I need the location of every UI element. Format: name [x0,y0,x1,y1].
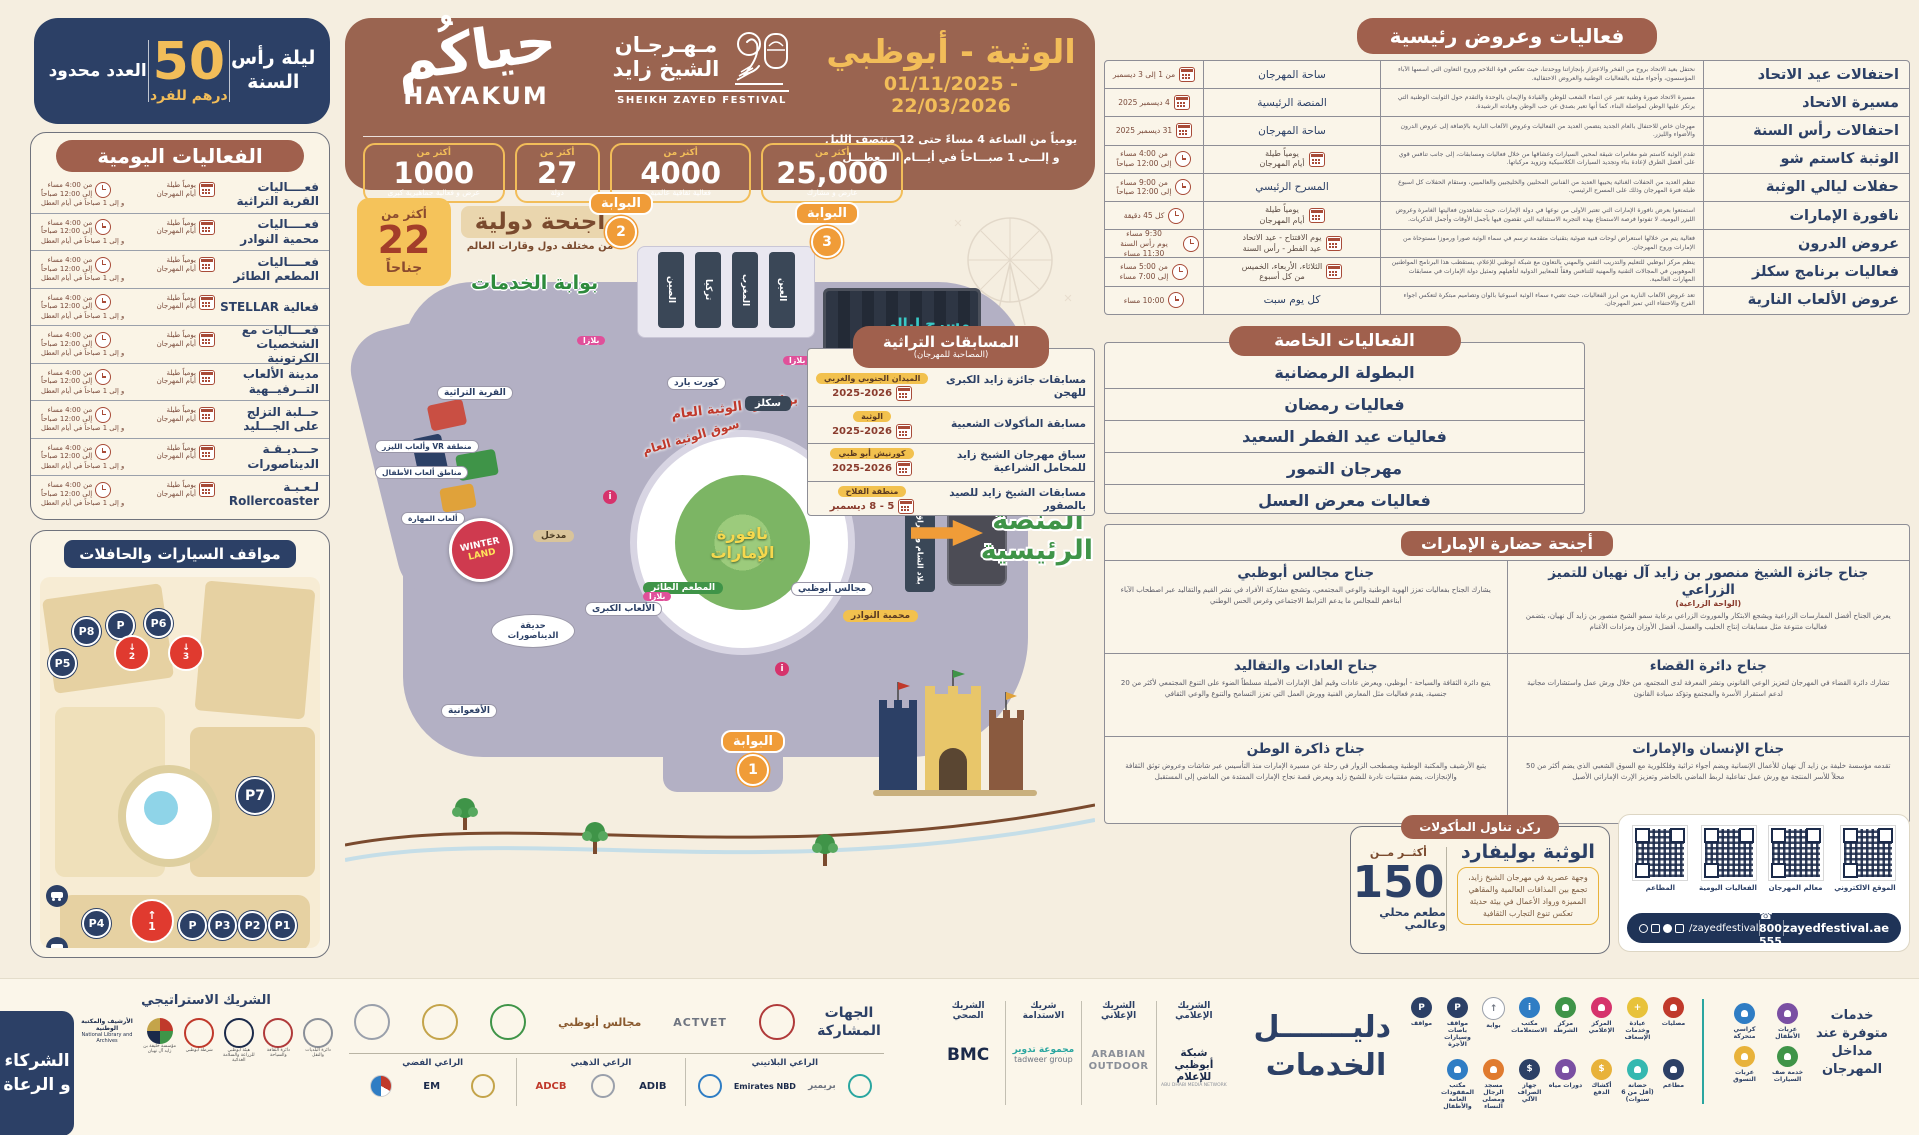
pavilion-name: جناح جائزة الشيخ منصور بن زايد آل نهيان … [1520,565,1898,599]
pavilion-levant-iraq: بلاد الشام والعراق [905,506,935,592]
pavilion-alain: العين [769,252,795,328]
website-url: zayedfestival.ae [1783,921,1889,935]
qr-item-daily-events: الفعاليات اليومية [1699,825,1757,892]
event-time: من 9:00 مساءإلى 12:00 صباحاً [1105,174,1203,201]
contact-footer-bar: /zayedfestival ☎ 800 555 zayedfestival.a… [1627,913,1901,943]
new-year-price-badge: ليلة رأس السنة 50 درهم للفرد العدد محدود [34,18,330,124]
event-row: مسيرة الاتحادمسيرة الاتحاد صورة وطنية تع… [1105,88,1909,116]
poi-vr-zone: منطقة VR وألعاب الليزر [375,440,479,453]
daily-events-list: فعــــاليات القرية التراثيةيومياً طيلةأي… [31,176,329,513]
pavilion-count-badge: أكثر من 22 جناحاً [357,198,451,286]
gate-number: 1 [148,921,156,932]
falcon-arch-icon [727,28,791,86]
service-icon-item: +عيادة وخدمات الإسعاف [1620,997,1655,1049]
service-icon-item: مسجد الرجال ومصلى النساء [1476,1059,1511,1111]
gate-label: البوابة [591,194,651,213]
special-event-row: فعاليات رمضان [1105,388,1584,420]
event-date: 31 ديسمبر 2025 [1105,117,1203,144]
emirates-pavilions-section: أجنحة حضارة الإمارات جناح جائزة الشيخ من… [1104,524,1910,824]
cal-l1: يومياً طيلة [166,481,196,489]
time-l2: إلى 12:00 صباحاً [41,377,92,385]
heritage-name: مسابقة المأكولات الشعبية [934,418,1086,431]
event-date-text: 4 ديسمبر 2025 [1118,98,1170,107]
gold-sponsors: الراعي الذهبي ADCB ADIB [516,1058,684,1106]
event-location: ساحة المهرجان [1203,117,1380,144]
logo-caption: شرطة أبوظبي [181,1048,217,1053]
service-icon [1591,997,1612,1018]
gate-3: البوابة 3 [797,204,857,258]
festival-name-ar-2: الشيخ زايد [613,57,720,81]
parking-lot-p6: P6 [144,609,173,638]
event-desc: مهرجان خاص للاحتفال بالعام الجديد يتضمن … [1380,117,1703,144]
gate-label: البوابة [797,204,857,223]
badge22-suffix: جناحاً [386,261,422,276]
pavilion-china: الصين [658,252,684,328]
dct-logo: دائرة الثقافة والسياحة [260,1018,296,1058]
calendar-icon [896,424,912,439]
pavilion-name: جناح دائرة القضاء [1520,658,1898,675]
actvet-logo: ACTVET [673,1016,727,1029]
event-desc-text: تعد عروض الألعاب النارية من أبرز الفعالي… [1389,292,1695,309]
event-desc: استمتعوا بعرض نافورة الإمارات التي تعتبر… [1380,202,1703,229]
event-name: عروض الدرون [1703,230,1909,257]
event-desc: فعالية يتم من خلالها استعراض لوحات فنية … [1380,230,1703,257]
festival-logo: مـهـرجـان الشيخ زايد SHEIKH ZAYED FESTIV… [597,28,807,106]
service-icon-item: iمكتب الاستعلامات [1512,997,1547,1049]
fountain-label-1: نافورة [717,524,768,543]
event-row: احتفالات عيد الاتحادنحتفل بعيد الاتحاد ب… [1105,61,1909,88]
service-icon [1627,1059,1648,1080]
service-icon-item: المركز الإعلامي [1584,997,1619,1049]
pavilion-desc: يشارك الجناح بفعاليات تعزز الهوية الوطني… [1117,585,1495,607]
heritage-date: 5 - 8 ديسمبر [830,501,895,512]
info-marker: i [775,662,789,676]
calendar-icon [199,332,215,347]
time-l2: إلى 12:00 صباحاً [41,452,92,460]
svc-label: خدمة صف السيارات [1770,1069,1805,1083]
special-event-name: فعاليات رمضان [1284,395,1404,414]
pavilion-sub: (الواحة الزراعية) [1520,599,1898,608]
calendar-icon [896,461,912,476]
clock-icon [1168,208,1184,224]
poi-skill-games: ألعاب المهارة [401,512,465,525]
stat-value: 27 [525,158,590,188]
parking-lot-p5: P5 [48,649,77,678]
time-l1: من 9:00 مساء [1120,178,1168,187]
service-label: مطاعم [1656,1082,1691,1089]
heritage-location: الميدان الجنوبي والغربي [816,373,928,384]
wheelchair-service: كراسي متحركة [1727,1003,1762,1040]
poi-nawader-reserve: محمية النوادر [843,610,918,622]
event-location: كل يوم سبت [1203,287,1380,314]
qr-footer-panel: الموقع الالكتروني معالم المهرجان الفعالي… [1618,814,1910,952]
mini-fountain [144,791,178,825]
event-time: 9:30 مساءيوم رأس السنة 11:30 مساء [1105,230,1203,257]
parking-map: P8 P P6 P5 P7 P4 P P3 P2 P1 ↓2 ↓3 ↑1 [40,577,320,948]
service-icon-item: مكتب المفقودات العامة والأطفال [1440,1059,1475,1111]
calendar-icon [1179,67,1195,82]
poi-entrance: مدخل [533,530,574,542]
box-l2: و الرعاة [3,1074,70,1098]
clock-icon [95,482,111,498]
adpolice-logo: شرطة أبوظبي [181,1018,217,1053]
pavilion-cell: جناح دائرة القضاءتشارك دائرة القضاء في ا… [1507,654,1910,736]
service-icon-item: دورات مياه [1548,1059,1583,1111]
logo-caption: مؤسسة خليفة بن زايد آل نهيان [142,1044,178,1054]
service-label: بوابة [1476,1022,1511,1029]
event-row: احتفالات رأس السنةمهرجان خاص للاحتفال با… [1105,116,1909,144]
event-desc: تقدم الوثبة كاستم شو مغامرات شيقة لمحبي … [1380,146,1703,173]
partner-sub: ABU DHABI MEDIA NETWORK [1161,1083,1227,1088]
event-desc-text: نحتفل بعيد الاتحاد بروح من الفخر والاعتز… [1389,66,1695,83]
heritage-date: 2025-2026 [832,463,892,474]
castle-illustration [865,670,1045,805]
clock-icon [95,332,111,348]
valet-service: خدمة صف السيارات [1770,1046,1805,1083]
time-l2: إلى 12:00 صباحاً [41,415,92,423]
cal-l2: أيام المهرجان [157,452,196,460]
gate-2: البوابة 2 [591,194,651,248]
cal-l1: يومياً طيلة [166,181,196,189]
strategic-logos: الأرشيف والمكتبة الوطنية National Librar… [76,1018,336,1063]
festival-name-ar-1: مـهـرجـان [613,33,720,57]
festival-poster: ليلة رأس السنة 50 درهم للفرد العدد محدود… [0,0,1919,1135]
heritage-title-pill: المسابقات التراثية (المصاحبة للمهرجان) [853,326,1049,368]
cal-l2: أيام المهرجان [157,340,196,348]
when-l2: أيام المهرجان [1259,216,1304,225]
event-name: حفلات ليالي الوثبة [1703,174,1909,201]
calendar-icon [896,386,912,401]
time-l1: من 4:00 مساء [48,256,93,264]
event-time-text: كل 45 دقيقة [1124,211,1165,220]
service-icon-item: $أكشاك الدفع [1584,1059,1619,1111]
pavilion-desc: يعرض الجناح أفضل الممارسات الزراعية ويشج… [1520,611,1898,633]
cal-l2: أيام المهرجان [157,377,196,385]
event-time-text: 10:00 مساء [1124,296,1165,305]
clock-icon [1175,151,1191,167]
event-date-text: 31 ديسمبر 2025 [1116,126,1172,135]
pavilion-cell: جناح جائزة الشيخ منصور بن زايد آل نهيان … [1507,561,1910,653]
cal-l2: أيام المهرجان [157,490,196,498]
gate-arrow-1: ↑1 [130,899,174,943]
participating-l2: المشاركة [814,1022,884,1040]
time-l3: و إلى 1 صباحاً في أيام العطل [41,462,215,470]
time-l2: يوم رأس السنة 11:30 مساء [1120,239,1168,258]
calendar-icon [199,295,215,310]
pavilion-cell: جناح مجالس أبوظبييشارك الجناح بفعاليات ت… [1105,561,1507,653]
special-events-section: الفعاليات الخاصة البطولة الرمضانيةفعاليا… [1104,326,1585,514]
heritage-location: منطقة الفلاح [838,486,907,497]
logo-caption: هيئة أبوظبي للزراعة والسلامة الغذائية [221,1048,257,1063]
special-events-title: الفعاليات الخاصة [1229,326,1461,356]
clock-icon [1183,236,1199,252]
clock-icon [95,444,111,460]
calendar-icon [199,445,215,460]
stat-value: 25,000 [771,158,893,188]
badge22-number: 22 [378,221,431,261]
daily-event-name: فعــــاليات محمية النوادر [219,217,319,246]
event-name: الوثبة كاستم شو [1703,146,1909,173]
calendar-icon [1326,236,1342,251]
parking-lot-p2: P2 [238,911,267,940]
event-row: عروض الدرونفعالية يتم من خلالها استعراض … [1105,229,1909,257]
fountain-label-2: الإمارات [710,543,774,562]
box-l1: الشركاء [4,1050,69,1074]
time-l3: و إلى 1 صباحاً في أيام العطل [41,424,215,432]
entity-logo [490,1004,526,1040]
calendar-icon [199,482,215,497]
clock-icon [1175,179,1191,195]
cal-l2: أيام المهرجان [157,415,196,423]
when-l2: من كل أسبوع [1259,272,1305,281]
pavilion-cell: جناح العادات والتقاليديتبع دائرة الثقافة… [1105,654,1507,736]
tier-label: الراعي الفضي [355,1058,510,1068]
when-l1: يوم الافتتاح - عيد الاتحاد [1243,233,1322,242]
cal-l2: أيام المهرجان [157,302,196,310]
clock-icon [1168,292,1184,308]
entity-logo [354,1004,390,1040]
festival-location: الوثبة - أبوظبي [825,32,1077,71]
daily-event-name: فعـــاليات مع الشخصيات الكرتونية [219,323,319,366]
divider-teal [1702,999,1704,1104]
service-label: مصليات [1656,1020,1691,1027]
cal-l2: أيام المهرجان [157,190,196,198]
when-l1: يومياً طيلة [1265,149,1299,158]
time-l1: من 5:00 مساء [1120,262,1168,271]
participating-l1: الجهات [814,1004,884,1022]
service-icon: P [1411,997,1432,1018]
event-location-text: المسرح الرئيسي [1255,181,1329,193]
event-time: 10:00 مساء [1105,287,1203,314]
cal-l1: يومياً طيلة [166,406,196,414]
food-count: 150 [1352,859,1444,907]
daily-event-row: حـــديـقـة الديناصوراتيومياً طيلةأيام ال… [31,438,329,476]
main-events-title: فعاليات وعروض رئيسية [1357,18,1657,54]
parking-lot-p8: P8 [72,617,101,646]
calendar-icon [1309,152,1325,167]
event-desc-text: تنظم العديد من الحفلات الغنائية يحييها ا… [1389,179,1695,196]
qr-item-website: الموقع الالكتروني [1834,825,1896,892]
service-label: عيادة وخدمات الإسعاف [1620,1020,1655,1041]
limited-count-note: العدد محدود [49,61,147,81]
event-time: من 4:00 مساءإلى 12:00 صباحاً [1105,146,1203,173]
service-label: المركز الإعلامي [1584,1020,1619,1034]
info-marker: i [603,490,617,504]
event-desc-text: فعالية يتم من خلالها استعراض لوحات فنية … [1389,235,1695,252]
service-label: مركز الشرطة [1548,1020,1583,1034]
time-l2: إلى 12:00 صباحاً [41,302,92,310]
parking-lot-accessible-2: P [178,911,207,940]
strategic-label: الشريك الاستراتيجي [76,993,336,1008]
event-schedule: يوم الافتتاح - عيد الاتحادعيد الفطر - رأ… [1203,230,1380,257]
qr-label: المطاعم [1632,884,1688,892]
service-icon-item: مطاعم [1656,1059,1691,1111]
night-badge-title-l2: السنة [231,71,315,95]
svc-label: كراسي متحركة [1727,1026,1762,1040]
heritage-date: 2025-2026 [832,426,892,437]
partner-name: شبكة أبوظبي للإعلام [1161,1047,1227,1083]
qr-label: الفعاليات اليومية [1699,884,1757,892]
heritage-row: مسابقات جائزة زايد الكبرى للهجنالميدان ا… [808,369,1094,406]
event-desc-text: مهرجان خاص للاحتفال بالعام الجديد يتضمن … [1389,123,1695,140]
social-icons [1639,924,1684,933]
heritage-competitions-section: المسابقات التراثية (المصاحبة للمهرجان) م… [807,326,1095,514]
main-stage-l2: الرئيسية [983,536,1093,566]
partner-label: شريك الاستدامة [1010,1001,1076,1021]
daily-event-name: لـعـبـة Rollercoaster [219,480,319,509]
event-time: من 5:00 مساءإلى 7:00 مساء [1105,258,1203,285]
pavilion-name: جناح الإنسان والإمارات [1520,741,1898,758]
service-icon: + [1627,997,1648,1018]
time-l3: و إلى 1 صباحاً في أيام العطل [41,349,215,357]
special-event-name: فعاليات عيد الفطر السعيد [1242,427,1447,446]
pavilion-turkey: تركيا [695,252,721,328]
guide-title-l2: الخدمات [1261,1047,1391,1085]
heritage-name: مسابقات الشيخ زايد للصيد بالصقور [934,487,1086,513]
daily-event-name: فعالية STELLAR [219,300,319,314]
daily-event-row: لـعـبـة Rollercoasterيومياً طيلةأيام الم… [31,475,329,513]
poi-plaza-3: بلازا [643,592,671,601]
heritage-location: كورنيش أبو ظبي [830,448,913,459]
pavilion-desc: تشارك دائرة القضاء في المهرجان لتعزيز ال… [1520,678,1898,700]
poi-majalis: مجالس أبوظبي [791,582,873,596]
sponsor-logo-adib: ADIB [639,1081,666,1092]
service-label: مكتب المفقودات العامة والأطفال [1440,1082,1475,1111]
hayakum-logo: حياكُم HAYAKUM [371,24,581,110]
qr-label: الموقع الالكتروني [1834,884,1896,892]
poi-kids-zone: مناطق ألعاب الأطفال [375,466,468,479]
clock-icon [95,407,111,423]
daily-event-row: حــلبة التزلج على الجـــليديومياً طيلةأي… [31,400,329,438]
service-label: مواقف باصات وسيارات الأجرة [1440,1020,1475,1049]
when-l1: يومياً طيلة [1265,205,1299,214]
daily-events-title: الفعاليات اليومية [56,140,304,172]
service-icon: i [1519,997,1540,1018]
entrance-services-icons: عربات الأطفال كراسي متحركة خدمة صف السيا… [1727,1003,1805,1084]
daily-event-name: مدينة الألعاب التــرفيــهية [219,367,319,396]
service-icon: $ [1591,1059,1612,1080]
night-badge-title-l1: ليلة رأس [231,47,315,71]
night-badge-title: ليلة رأس السنة [231,47,315,95]
event-date: من 1 إلى 3 ديسمبر [1105,61,1203,88]
pavilion-desc: تقدمه مؤسسة خليفة بن زايد آل نهيان للأعم… [1520,761,1898,783]
service-label: مسجد الرجال ومصلى النساء [1476,1082,1511,1111]
festival-map: العين المغرب تركيا الصين بلاد الشام والع… [345,190,1095,960]
event-name: نافورة الإمارات [1703,202,1909,229]
stroller-service: عربات الأطفال [1770,1003,1805,1040]
qr-code [1632,825,1688,881]
time-l1: من 4:00 مساء [48,294,93,302]
calendar-icon [199,220,215,235]
time-l2: إلى 12:00 صباحاً [41,227,92,235]
clock-icon [95,369,111,385]
entrance-services: خدمات متوفرة عند مداخل المهرجان عربات ال… [1711,1003,1891,1084]
services-icons-grid: مصليات+عيادة وخدمات الإسعافالمركز الإعلا… [1405,997,1691,1110]
sponsors-row: الراعي البلاتيني Emirates NBD بريمير الر… [349,1058,884,1106]
special-event-row: مهرجان التمور [1105,452,1584,484]
parking-lot-p3: P3 [208,911,237,940]
parking-lot-p1: P1 [268,911,297,940]
time-l1: من 4:00 مساء [48,331,93,339]
sponsor-logo-pepsi [370,1075,392,1097]
gate-arrow-3: ↓3 [168,635,204,671]
pavilions-title: أجنحة حضارة الإمارات [1401,531,1613,556]
sponsor-logo-enbd: Emirates NBD [734,1082,796,1091]
partner-name: ARABIAN OUTDOOR [1086,1049,1152,1073]
event-desc: تعد عروض الألعاب النارية من أبرز الفعالي… [1380,287,1703,314]
poi-rollercoaster: الأفعوانية [441,704,497,718]
phone-number: ☎ 800 555 [1759,909,1783,948]
heritage-location: الوثبة [853,411,891,422]
event-desc-text: ينظم مركز أبوظبي للتعليم والتدريب التقني… [1389,259,1695,284]
partner-label: الشريك الإعلامي [1161,1001,1227,1021]
partner-sub: tadweer group [1010,1055,1076,1064]
service-icon-item: $جهاز الصراف الآلي [1512,1059,1547,1111]
logo-caption: دائرة الثقافة والسياحة [260,1048,296,1058]
event-row: عروض الألعاب الناريةتعد عروض الألعاب الن… [1105,286,1909,314]
service-icon [1483,1059,1504,1080]
partner-advertising: الشريك الإعلاني ARABIAN OUTDOOR [1081,1001,1156,1105]
entrance-services-text: خدمات متوفرة عند مداخل المهرجان [1813,1007,1891,1080]
pavilion-desc: يتبع الأرشيف والمكتبة الوطنية ويصطحب الز… [1117,761,1495,783]
majalis-logo: مجالس أبوظبي [558,1016,641,1029]
qr-code [1768,825,1824,881]
parking-lot-p4: P4 [82,909,111,938]
event-row: نافورة الإماراتاستمتعوا بعرض نافورة الإم… [1105,201,1909,229]
heritage-competitions-list: مسابقات جائزة زايد الكبرى للهجنالميدان ا… [807,348,1095,516]
heritage-date: 2025-2026 [832,388,892,399]
clock-icon [95,257,111,273]
time-l2: إلى 12:00 صباحاً [41,265,92,273]
time-l1: من 4:00 مساء [48,369,93,377]
pavilions-grid: جناح جائزة الشيخ منصور بن زايد آل نهيان … [1105,560,1909,819]
special-event-row: فعاليات معرض العسل [1105,484,1584,514]
special-events-list: البطولة الرمضانيةفعاليات رمضانفعاليات عي… [1104,342,1585,514]
time-l2: إلى 12:00 صباحاً [1117,187,1172,196]
event-name: مسيرة الاتحاد [1703,89,1909,116]
special-event-name: مهرجان التمور [1287,459,1402,478]
daily-event-row: فعـــاليات مع الشخصيات الكرتونيةيومياً ط… [31,325,329,363]
sponsor-logo-premier: بريمير [808,1081,836,1091]
time-l2: إلى 12:00 صباحاً [41,490,92,498]
stat-value: 4000 [620,158,742,188]
event-location: المنصة الرئيسية [1203,89,1380,116]
dmt-logo: دائرة البلديات والنقل [300,1018,336,1058]
service-icon-item: Pمواقف [1404,997,1439,1049]
time-l1: من 4:00 مساء [48,444,93,452]
time-l1: 9:30 مساء [1126,229,1162,238]
divider [349,1053,884,1054]
pavilion-name: جناح العادات والتقاليد [1117,658,1495,675]
food-corner-title: ركن تناول المأكولات [1401,815,1559,839]
cal-l1: يومياً طيلة [166,294,196,302]
social-text: /zayedfestival [1689,923,1759,934]
cart-service: عربات التسوق [1727,1046,1762,1083]
night-badge-price: 50 درهم للفرد [150,38,228,103]
special-event-row: البطولة الرمضانية [1105,357,1584,388]
service-icon-item: مصليات [1656,997,1691,1049]
cal-l1: يومياً طيلة [166,219,196,227]
participating-label: الجهات المشاركة [814,1004,884,1040]
poi-courtyard: كورت يارد [667,376,726,390]
cal-l1: يومياً طيلة [166,444,196,452]
participating-logos: مجالس أبوظبي ACTVET [349,1004,800,1040]
daily-event-row: فعــــاليات المطعم الطائريومياً طيلةأيام… [31,250,329,288]
event-row: فعاليات برنامج سكلزينظم مركز أبوظبي للتع… [1105,257,1909,285]
cal-l1: يومياً طيلة [166,256,196,264]
partner-sustainability: شريك الاستدامة مجموعة تدوير tadweer grou… [1005,1001,1080,1105]
sponsor-logo [471,1074,495,1098]
